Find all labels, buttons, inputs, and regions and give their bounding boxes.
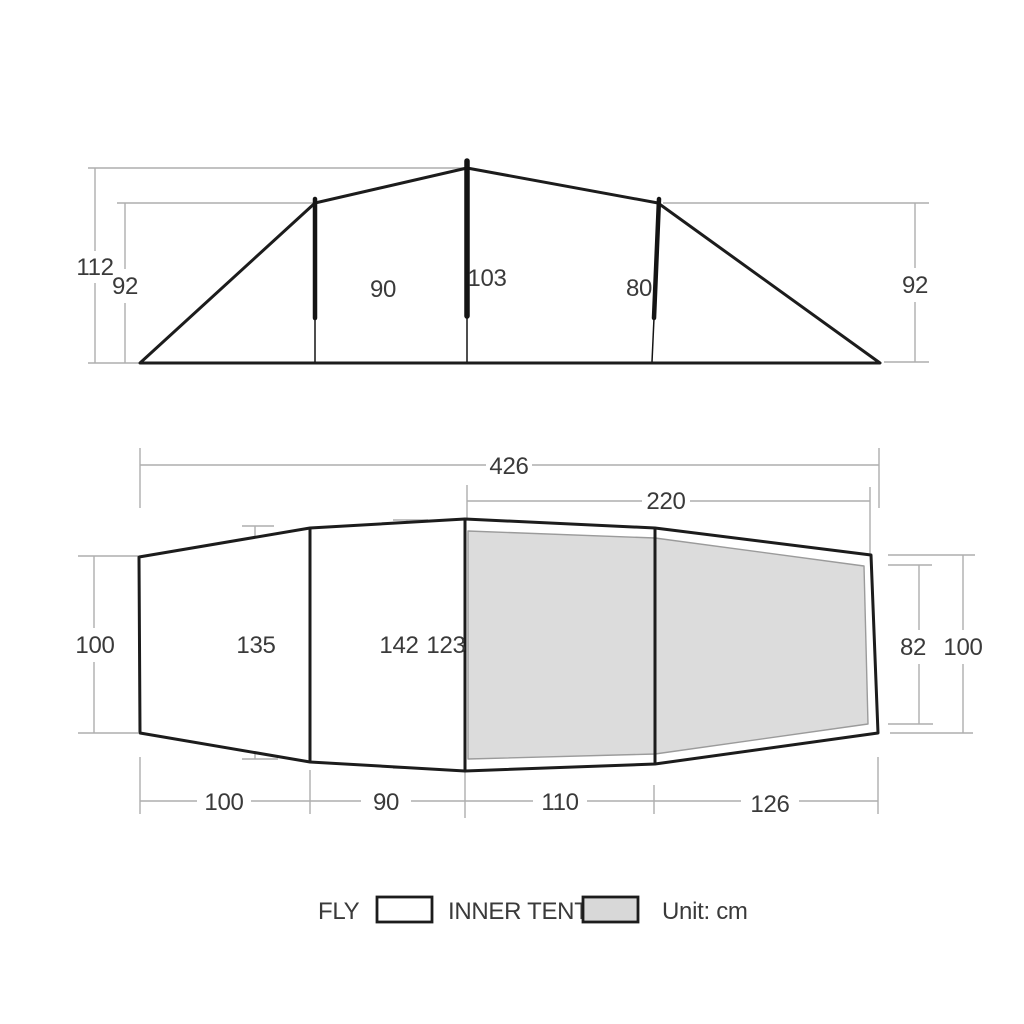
label-inner-rear-width: 82 (900, 634, 926, 661)
label-inner-tent-length: 220 (646, 488, 685, 515)
side-view: 112 92 90 103 80 92 (76, 161, 929, 363)
label-inner-rear-section: 126 (750, 791, 789, 818)
label-porch-width: 135 (236, 632, 275, 659)
label-mid-fly-width: 142 (379, 632, 418, 659)
label-rear-end-width: 100 (943, 634, 982, 661)
diagram-canvas: 112 92 90 103 80 92 (0, 0, 1024, 1024)
label-inner-peak-height: 103 (467, 265, 506, 292)
label-total-length: 426 (489, 453, 528, 480)
label-door-height: 90 (370, 276, 396, 303)
legend-unit-label: Unit: cm (662, 898, 748, 925)
label-front-section: 100 (204, 789, 243, 816)
fly-side-profile (140, 168, 880, 363)
label-front-end-width: 100 (75, 632, 114, 659)
label-inner-rear-height: 80 (626, 275, 652, 302)
legend: FLY INNER TENT Unit: cm (318, 897, 748, 925)
label-front-pole-height: 92 (112, 273, 138, 300)
legend-inner-tent-label: INNER TENT (448, 898, 589, 925)
fly-swatch (377, 897, 432, 922)
label-fly-peak-height: 112 (76, 254, 113, 281)
label-rear-pole-height: 92 (902, 272, 928, 299)
label-porch-section: 90 (373, 789, 399, 816)
inner-tent-floor (468, 531, 868, 759)
inner-tent-swatch (583, 897, 638, 922)
legend-fly-label: FLY (318, 898, 360, 925)
label-inner-front-section: 110 (541, 789, 578, 816)
top-view: 426 220 100 135 142 123 82 100 100 90 11… (75, 448, 982, 818)
label-inner-front-width: 123 (426, 632, 465, 659)
tent-dimensions-diagram: 112 92 90 103 80 92 (0, 0, 1024, 1024)
